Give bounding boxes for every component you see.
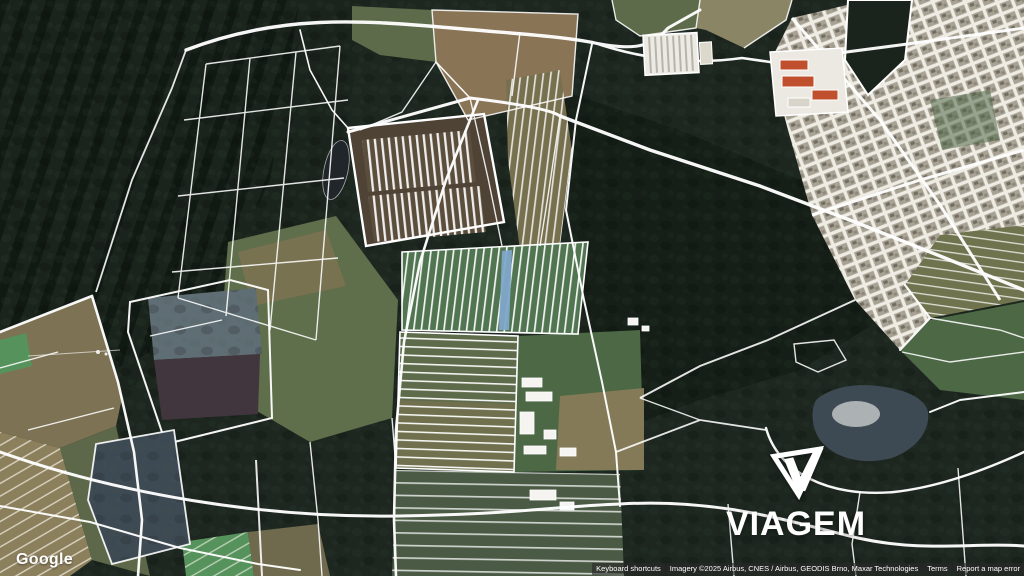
red-roof-buildings [770,48,848,116]
report-map-error-link[interactable]: Report a map error [953,563,1024,575]
map-viewport[interactable]: VIAGEM Google Keyboard shortcuts Imagery… [0,0,1024,576]
imagery-credit: Imagery ©2025 Airbus, CNES / Airbus, GEO… [666,563,922,575]
google-logo[interactable]: Google [16,551,73,569]
attribution-bar: Keyboard shortcuts Imagery ©2025 Airbus,… [592,563,1024,575]
terms-link[interactable]: Terms [923,563,951,575]
satellite-imagery [0,0,1024,576]
keyboard-shortcuts-button[interactable]: Keyboard shortcuts [592,563,665,575]
